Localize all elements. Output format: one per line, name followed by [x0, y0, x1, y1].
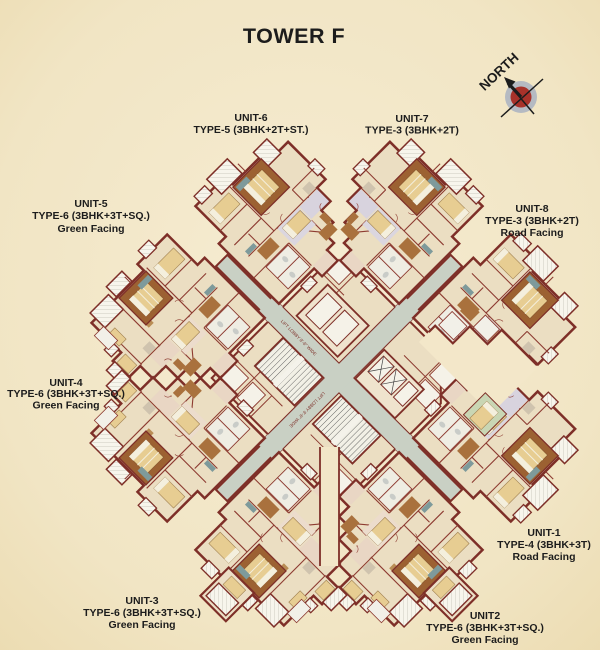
- svg-text:TYPE-6 (3BHK+3T+SQ.): TYPE-6 (3BHK+3T+SQ.): [83, 607, 201, 619]
- svg-text:UNIT-8: UNIT-8: [515, 203, 548, 215]
- svg-text:TYPE-6 (3BHK+3T+SQ.): TYPE-6 (3BHK+3T+SQ.): [32, 210, 150, 222]
- svg-text:Road Facing: Road Facing: [500, 227, 563, 239]
- svg-text:TYPE-3 (3BHK+2T): TYPE-3 (3BHK+2T): [485, 215, 579, 227]
- svg-text:Road Facing: Road Facing: [512, 551, 575, 563]
- svg-text:UNIT-3: UNIT-3: [125, 595, 158, 607]
- svg-text:TYPE-4 (3BHK+3T): TYPE-4 (3BHK+3T): [497, 539, 591, 551]
- svg-text:UNIT-7: UNIT-7: [395, 113, 428, 125]
- svg-text:TYPE-6 (3BHK+3T+SQ.): TYPE-6 (3BHK+3T+SQ.): [426, 622, 544, 634]
- svg-text:TYPE-5 (3BHK+2T+ST.): TYPE-5 (3BHK+2T+ST.): [194, 124, 309, 136]
- svg-text:UNIT-5: UNIT-5: [74, 198, 107, 210]
- svg-text:TYPE-6 (3BHK+3T+SQ.): TYPE-6 (3BHK+3T+SQ.): [7, 388, 125, 400]
- svg-text:Green Facing: Green Facing: [57, 223, 124, 235]
- svg-text:UNIT-6: UNIT-6: [234, 112, 267, 124]
- svg-text:Green Facing: Green Facing: [451, 634, 518, 646]
- svg-text:UNIT-1: UNIT-1: [527, 527, 560, 539]
- svg-text:Green Facing: Green Facing: [32, 400, 99, 412]
- svg-text:TOWER F: TOWER F: [243, 24, 345, 48]
- svg-text:Green Facing: Green Facing: [108, 619, 175, 631]
- svg-text:UNIT2: UNIT2: [470, 610, 500, 622]
- svg-text:TYPE-3 (3BHK+2T): TYPE-3 (3BHK+2T): [365, 125, 459, 137]
